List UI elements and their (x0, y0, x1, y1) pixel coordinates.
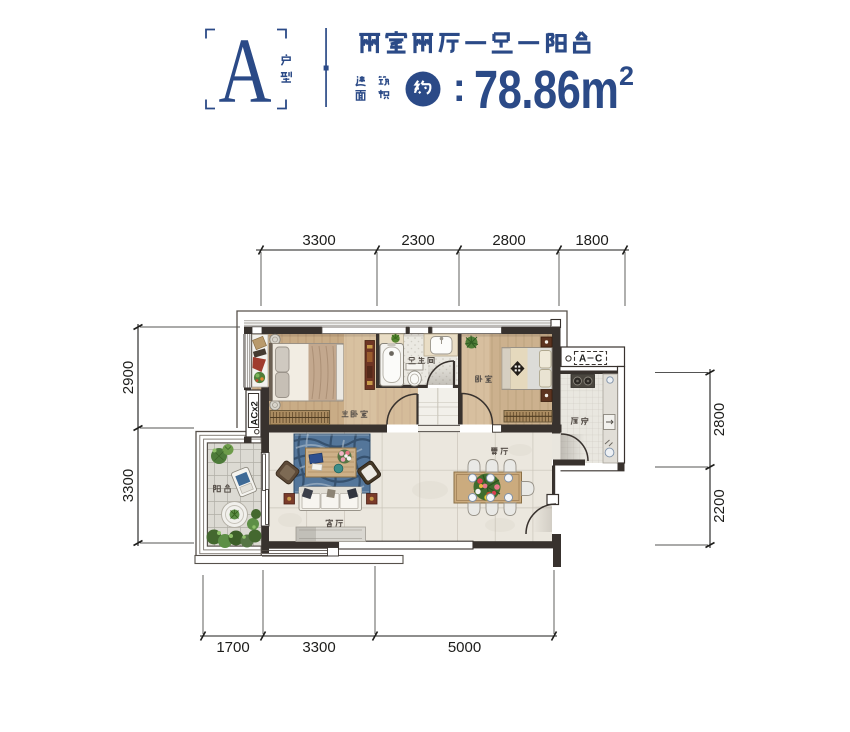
svg-text:5000: 5000 (448, 639, 481, 656)
svg-text:2200: 2200 (711, 489, 728, 522)
svg-text:2800: 2800 (492, 232, 525, 249)
svg-text:2300: 2300 (401, 232, 434, 249)
svg-text:78.86m: 78.86m (474, 61, 619, 120)
svg-text:3300: 3300 (120, 469, 137, 502)
svg-text:ACx2: ACx2 (249, 401, 260, 425)
svg-text:1700: 1700 (216, 639, 249, 656)
svg-text:3300: 3300 (302, 232, 335, 249)
svg-text:2900: 2900 (120, 361, 137, 394)
svg-text:1800: 1800 (575, 232, 608, 249)
svg-text:A: A (218, 20, 271, 123)
svg-text:C: C (595, 354, 602, 365)
svg-text:A: A (579, 354, 586, 365)
svg-text:2800: 2800 (711, 403, 728, 436)
svg-text:2: 2 (619, 61, 634, 91)
svg-text:3300: 3300 (302, 639, 335, 656)
